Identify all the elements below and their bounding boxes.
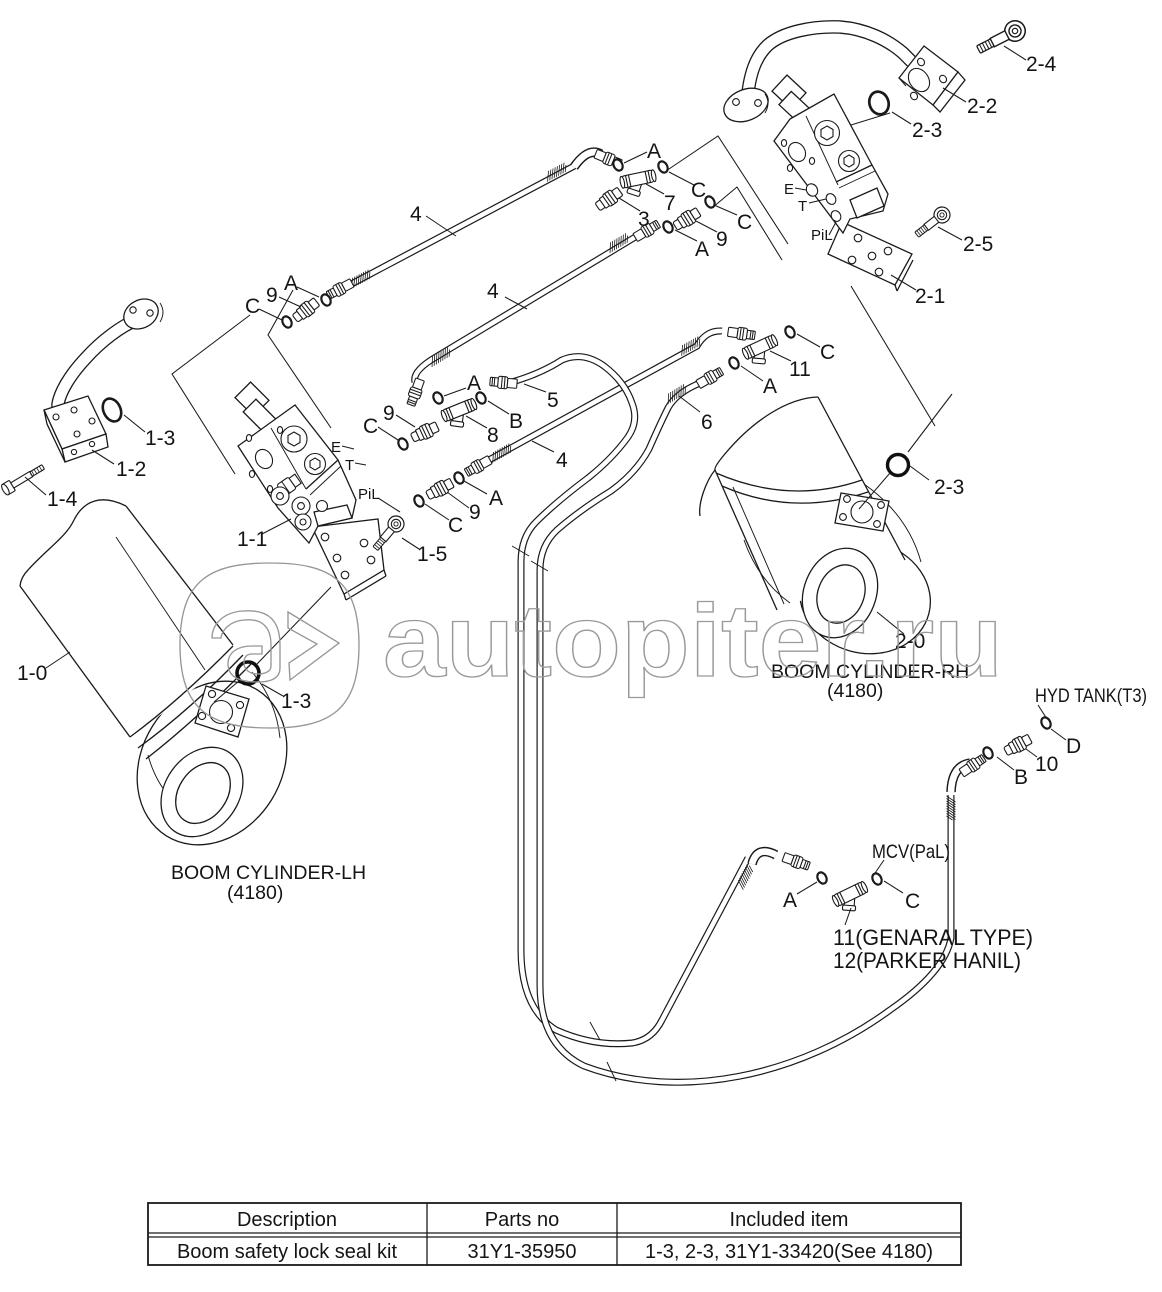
svg-text:10: 10 <box>1035 753 1058 776</box>
svg-text:4: 4 <box>556 449 568 472</box>
svg-text:A: A <box>783 889 797 912</box>
svg-text:A: A <box>763 375 777 398</box>
svg-text:Included item: Included item <box>730 1209 849 1231</box>
svg-text:T: T <box>798 198 807 215</box>
svg-text:4: 4 <box>487 280 499 303</box>
svg-text:B: B <box>509 410 523 433</box>
svg-text:1-3: 1-3 <box>145 427 175 450</box>
svg-text:11: 11 <box>789 358 811 381</box>
svg-text:E: E <box>784 181 794 198</box>
svg-text:7: 7 <box>664 192 676 215</box>
svg-text:3: 3 <box>638 208 650 231</box>
svg-text:5: 5 <box>547 389 559 412</box>
svg-text:E: E <box>331 439 341 456</box>
svg-text:2-4: 2-4 <box>1026 53 1057 76</box>
svg-text:A: A <box>695 238 709 261</box>
svg-text:9: 9 <box>716 228 728 251</box>
svg-text:9: 9 <box>469 501 481 524</box>
svg-text:Boom safety lock seal kit: Boom safety lock seal kit <box>177 1241 398 1263</box>
svg-text:D: D <box>1066 735 1081 758</box>
svg-text:2-3: 2-3 <box>912 119 942 142</box>
svg-text:2-2: 2-2 <box>967 95 997 118</box>
svg-text:1-4: 1-4 <box>47 488 78 511</box>
svg-text:C: C <box>691 179 706 202</box>
svg-text:9: 9 <box>383 402 395 425</box>
svg-text:2-3: 2-3 <box>934 476 964 499</box>
svg-text:31Y1-35950: 31Y1-35950 <box>468 1241 577 1263</box>
svg-text:1-2: 1-2 <box>116 458 146 481</box>
svg-text:Description: Description <box>237 1209 337 1231</box>
svg-text:HYD TANK(T3): HYD TANK(T3) <box>1035 685 1147 707</box>
svg-text:autopiter.ru: autopiter.ru <box>383 583 1003 698</box>
svg-text:A: A <box>489 487 503 510</box>
svg-text:12(PARKER HANIL): 12(PARKER HANIL) <box>833 948 1021 973</box>
svg-text:1-5: 1-5 <box>417 543 447 566</box>
svg-text:2-5: 2-5 <box>963 233 993 256</box>
svg-text:MCV(PaL): MCV(PaL) <box>872 841 950 863</box>
svg-text:C: C <box>905 890 920 913</box>
svg-text:6: 6 <box>701 411 713 434</box>
svg-text:PiL: PiL <box>358 486 380 503</box>
svg-text:A: A <box>284 272 298 295</box>
svg-text:C: C <box>448 514 463 537</box>
svg-text:2-1: 2-1 <box>915 285 945 308</box>
svg-text:C: C <box>363 415 378 438</box>
svg-text:A: A <box>647 140 661 163</box>
svg-text:Parts no: Parts no <box>485 1209 559 1231</box>
svg-text:C: C <box>820 341 835 364</box>
svg-text:1-3, 2-3, 31Y1-33420(See 4180): 1-3, 2-3, 31Y1-33420(See 4180) <box>645 1241 933 1263</box>
svg-text:(4180): (4180) <box>227 882 283 904</box>
svg-text:C: C <box>737 211 752 234</box>
svg-text:1-3: 1-3 <box>281 690 311 713</box>
svg-text:BOOM CYLINDER-LH: BOOM CYLINDER-LH <box>171 862 366 884</box>
svg-text:4: 4 <box>410 203 422 226</box>
svg-text:C: C <box>245 295 260 318</box>
svg-text:PiL: PiL <box>811 227 833 244</box>
svg-text:11(GENARAL TYPE): 11(GENARAL TYPE) <box>833 925 1033 950</box>
svg-text:8: 8 <box>487 424 499 447</box>
svg-text:A: A <box>467 372 481 395</box>
svg-text:1-0: 1-0 <box>17 662 47 685</box>
svg-text:B: B <box>1014 766 1028 789</box>
svg-text:9: 9 <box>266 284 278 307</box>
svg-text:1-1: 1-1 <box>237 528 267 551</box>
svg-text:T: T <box>345 457 354 474</box>
